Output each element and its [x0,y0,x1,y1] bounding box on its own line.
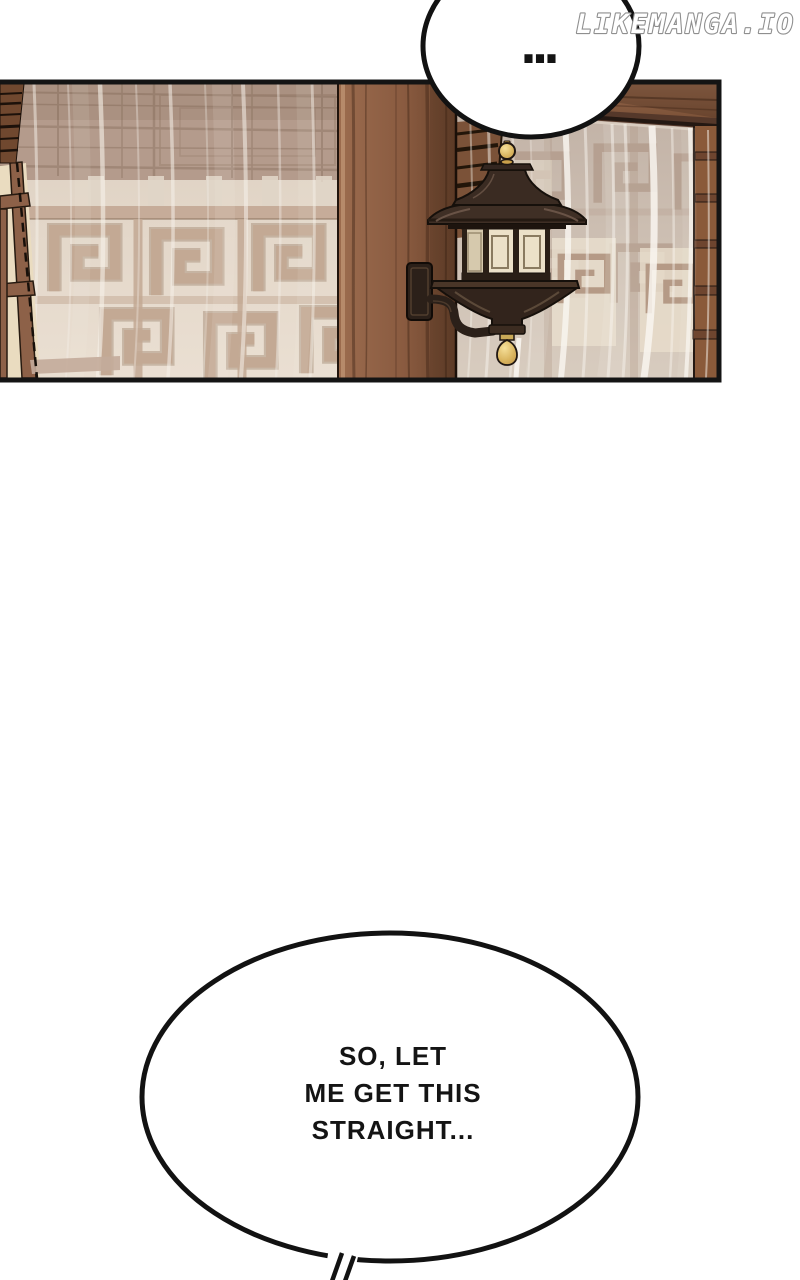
watermark: LIKEMANGA.IO [576,9,795,40]
pillar [337,84,457,378]
bottom-section: SO, LET ME GET THIS STRAIGHT... [0,920,800,1280]
bubble-line-3: STRAIGHT... [312,1115,475,1145]
comic-page: ... LIKEMANGA.IO SO, LET ME GET THIS STR… [0,0,800,1280]
lantern-finial [499,141,515,165]
lantern-body [462,221,550,281]
panel-interior [0,84,746,379]
bubble-line-1: SO, LET [339,1041,447,1071]
ellipsis-text: ... [520,20,556,74]
top-section: ... LIKEMANGA.IO [0,0,800,400]
lattice-wall-left [0,84,367,379]
wood-strip-right [693,126,717,378]
bubble-line-2: ME GET THIS [304,1078,481,1108]
speech-bubble-bottom: SO, LET ME GET THIS STRAIGHT... [142,933,638,1280]
